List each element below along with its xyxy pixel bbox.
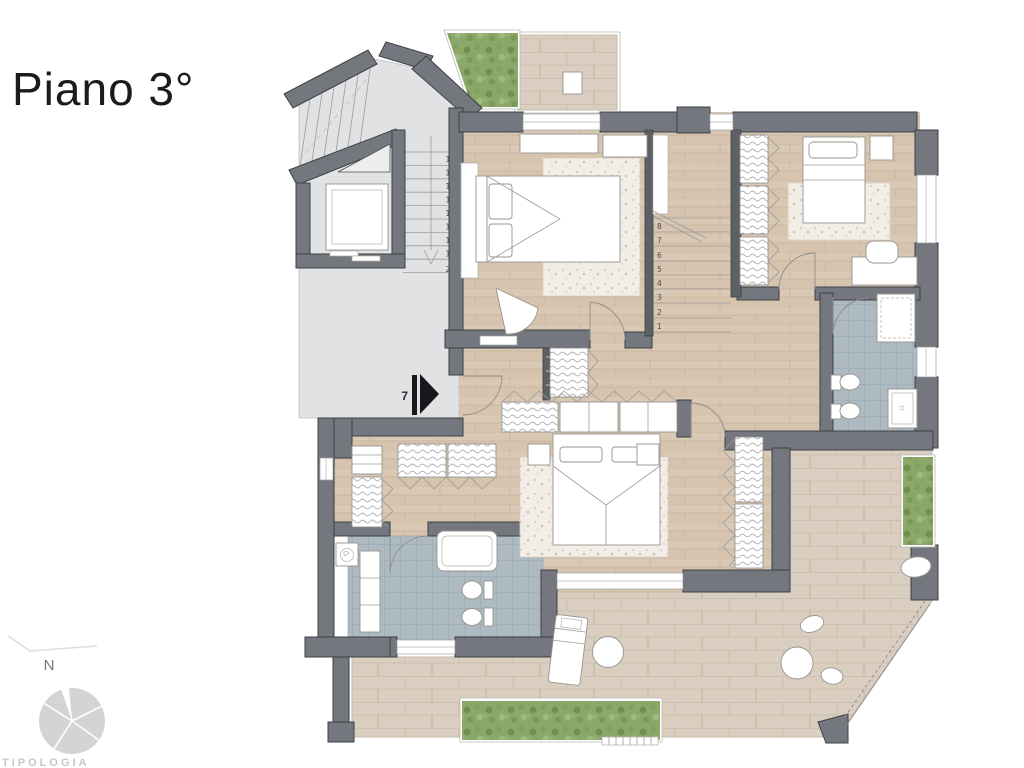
- bidet: [462, 608, 493, 626]
- bidet: [831, 403, 860, 419]
- step-label: 6: [657, 251, 662, 260]
- right-wall: [915, 130, 938, 175]
- west-wall: [318, 418, 334, 640]
- cabinet: [352, 446, 382, 474]
- elevator-wall-right: [392, 130, 405, 268]
- step-label: 5: [657, 265, 662, 274]
- sketch-line: [8, 636, 97, 651]
- washer-cabinet: [877, 294, 915, 342]
- round-table: [593, 637, 624, 668]
- nightstand: [870, 136, 893, 160]
- shower: [888, 389, 917, 428]
- tall-cabinet: [360, 551, 380, 632]
- bottom-hedge: [462, 701, 660, 740]
- elevator-door-panel: [352, 256, 380, 261]
- bedroom1-wall-inset: [480, 336, 517, 345]
- bathtub: [437, 531, 497, 571]
- pillow: [560, 447, 602, 462]
- stair-side-shelf: [653, 135, 668, 214]
- built-in-niche: [461, 163, 478, 278]
- top-wall: [459, 112, 523, 132]
- west-wall-cross: [305, 637, 390, 657]
- master-door-stub-wall: [677, 400, 691, 437]
- floor-plan-page: Piano 3°: [0, 0, 1024, 768]
- pillow: [489, 224, 512, 257]
- closet-nook-wall: [543, 348, 550, 400]
- elevator-car-inner: [332, 190, 382, 244]
- step-label: 1: [657, 322, 662, 331]
- stairwell-strip-west-wall: [645, 130, 653, 336]
- pillow: [489, 184, 512, 219]
- planter-detail: [602, 737, 658, 745]
- right-hedge: [903, 457, 933, 545]
- sideboard: [520, 134, 598, 153]
- entrance-number: 7: [401, 389, 408, 403]
- step-label: 4: [657, 279, 662, 288]
- elevator-door-panel: [330, 251, 358, 256]
- west-wall-lower: [333, 657, 349, 724]
- west-wall-cap: [328, 722, 354, 742]
- step-label: 3: [657, 293, 662, 302]
- top-wall: [600, 112, 677, 132]
- entrance-arrow-bar: [412, 375, 417, 415]
- bedroom2-south-wall: [737, 287, 779, 300]
- headboard: [476, 176, 487, 262]
- desk-chair: [866, 241, 898, 263]
- step-label: 8: [657, 222, 662, 231]
- window: [917, 347, 936, 377]
- north-label: N: [44, 657, 55, 674]
- wardrobe: [448, 444, 496, 477]
- nightstand: [637, 444, 659, 465]
- top-wall: [733, 112, 917, 132]
- pillow: [809, 142, 857, 158]
- washbasin: [336, 543, 358, 566]
- toilet: [462, 581, 493, 599]
- stairwell-strip-east-wall: [731, 130, 741, 297]
- roof-skylight: [563, 72, 582, 94]
- wardrobe: [352, 477, 382, 527]
- watermark: TIPOLOGIA: [2, 757, 90, 768]
- top-wall-pillar: [677, 107, 710, 133]
- bathroom2-south-wall: [455, 637, 557, 657]
- double-bed: [803, 137, 865, 223]
- master-south-wall: [683, 570, 790, 592]
- compass-rose: N: [8, 636, 105, 754]
- double-bed: [476, 176, 620, 262]
- nightstand: [528, 444, 550, 465]
- bathroom1-west-wall: [820, 293, 833, 450]
- step-label: 7: [657, 236, 662, 245]
- round-table: [781, 647, 813, 679]
- floor-plan-svg: 12 13 14 15 16 17 18 19 20: [0, 0, 1024, 768]
- west-wall-jog: [334, 418, 352, 458]
- window: [320, 458, 333, 480]
- step-label: 2: [657, 308, 662, 317]
- window: [917, 175, 936, 243]
- toilet: [831, 374, 860, 390]
- dresser: [603, 135, 647, 157]
- wardrobe: [398, 444, 446, 477]
